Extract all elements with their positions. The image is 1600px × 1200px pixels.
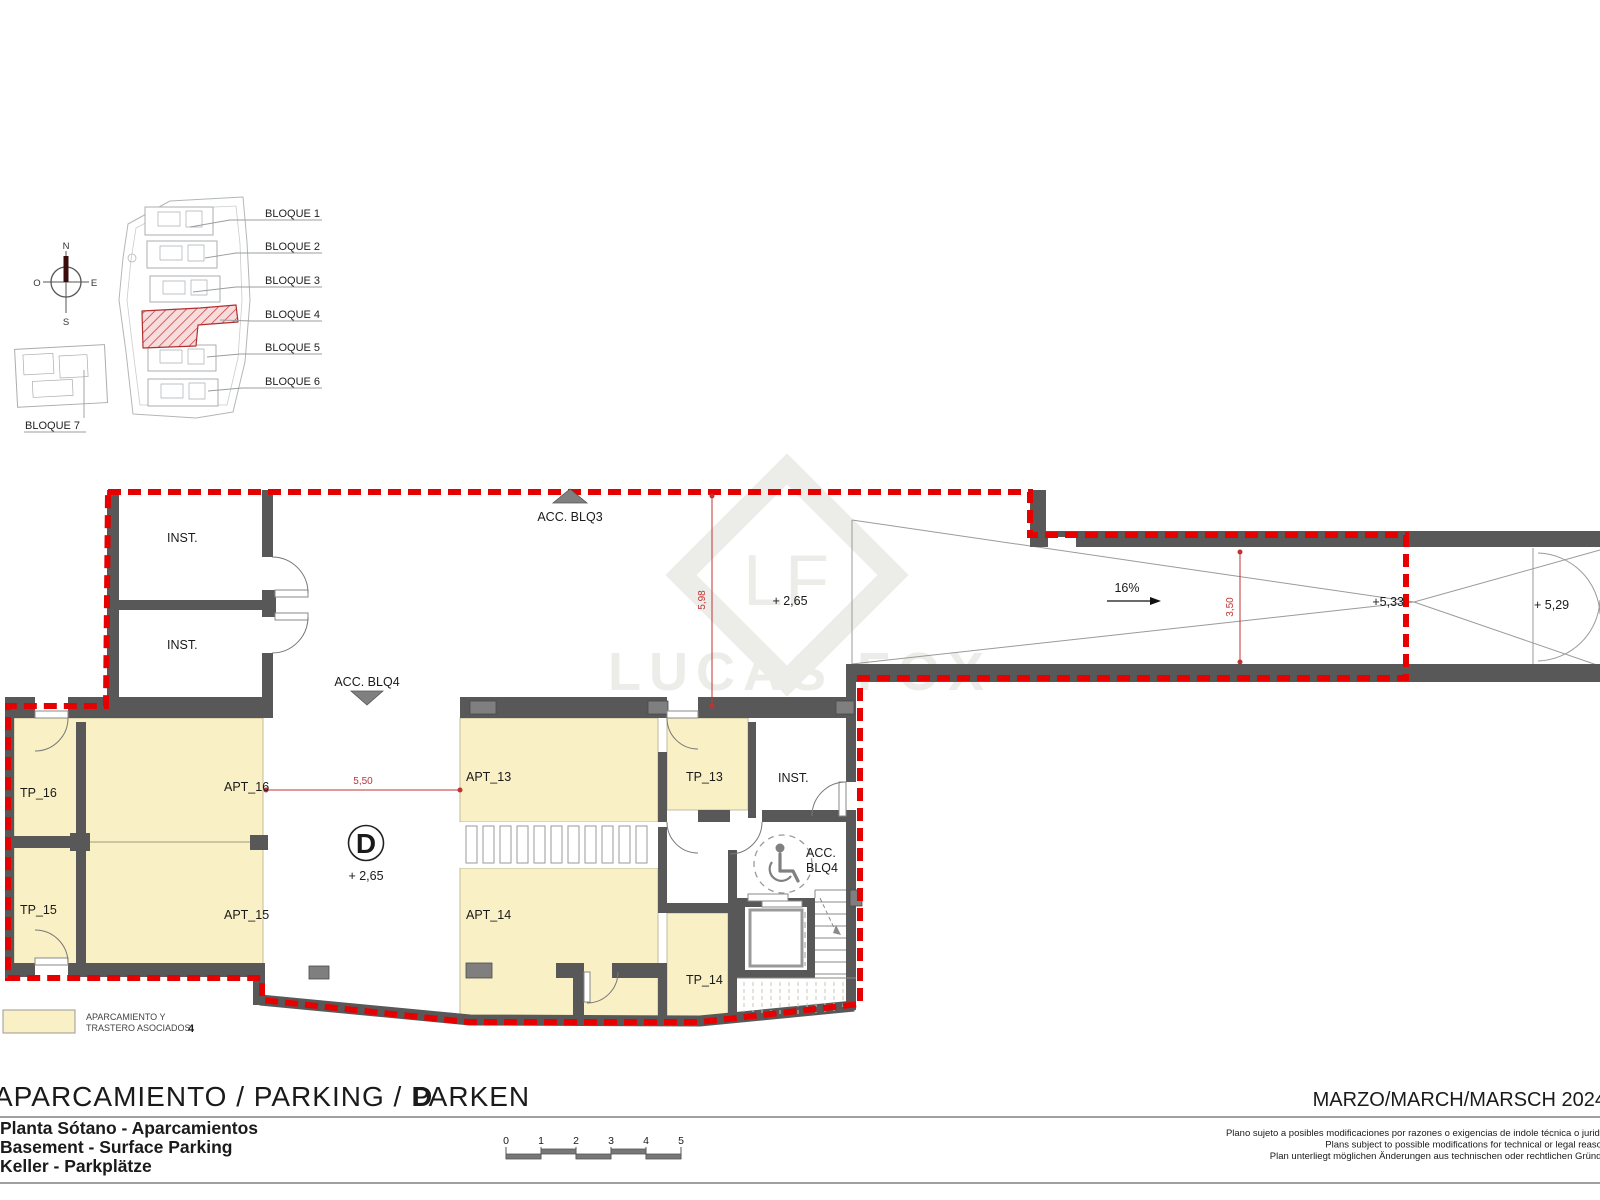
room-label-apt15: APT_15 [224, 908, 269, 922]
access-blq4-arrow-icon [351, 691, 383, 705]
site-label-bloque6: BLOQUE 6 [265, 376, 320, 388]
scale-bar: 0 1 2 3 4 5 [503, 1135, 684, 1159]
compass-needle [64, 256, 69, 282]
site-key-map: BLOQUE 1 BLOQUE 2 BLOQUE 3 BLOQUE 4 BLOQ… [15, 197, 322, 432]
sheet-date: MARZO/MARCH/MARSCH 2024 [1313, 1089, 1600, 1111]
wheelchair-icon [754, 835, 812, 893]
disclaimer-es: Plano sujeto a posibles modificaciones p… [1226, 1128, 1600, 1139]
access-side-label-2: BLQ4 [806, 861, 838, 875]
disclaimer-en: Plans subject to possible modifications … [1325, 1140, 1600, 1151]
elevator [750, 910, 805, 966]
room-label-apt13: APT_13 [466, 770, 511, 784]
site-blocks [145, 207, 220, 406]
dim-550: 5,50 [353, 776, 373, 787]
room-label-apt16: APT_16 [224, 780, 269, 794]
site-label-bloque1: BLOQUE 1 [265, 208, 320, 220]
title-block: APARCAMIENTO / PARKING / PARKEN D MARZO/… [0, 1081, 1600, 1183]
dim-598: 5,98 [697, 590, 708, 610]
access-blq4-label: ACC. BLQ4 [334, 675, 399, 689]
legend-line1: APARCAMIENTO Y [86, 1012, 166, 1022]
compass-s: S [63, 317, 69, 328]
site-label-bloque5: BLOQUE 5 [265, 342, 320, 354]
site-label-bloque2: BLOQUE 2 [265, 241, 320, 253]
floor-plan-svg: LF LUCAS FOX [0, 0, 1600, 1200]
site-block-7 [15, 345, 108, 408]
room-label-inst-bottom: INST. [167, 638, 198, 652]
wall-notch [1048, 537, 1076, 547]
room-label-tp14: TP_14 [686, 973, 723, 987]
site-label-bloque4: BLOQUE 4 [265, 309, 320, 321]
storage-slats [460, 822, 658, 868]
parking-area-tp13 [667, 718, 748, 810]
level-aisle: + 2,65 [348, 869, 383, 883]
scale-tick-2: 2 [573, 1135, 579, 1147]
watermark-initials: LF [743, 541, 831, 621]
site-label-bloque7: BLOQUE 7 [25, 420, 80, 432]
scale-tick-0: 0 [503, 1135, 509, 1147]
scale-tick-3: 3 [608, 1135, 614, 1147]
sector-marker: D [349, 826, 384, 861]
compass-e: E [91, 278, 97, 289]
level-hall: + 2,65 [772, 594, 807, 608]
scale-tick-1: 1 [538, 1135, 544, 1147]
sheet-title: APARCAMIENTO / PARKING / PARKEN [0, 1081, 530, 1112]
compass-o: O [33, 278, 40, 289]
level-ramp-end: + 5,29 [1534, 598, 1569, 612]
drawing-sheet: LF LUCAS FOX [0, 0, 1600, 1200]
room-label-inst-right: INST. [778, 771, 809, 785]
subtitle-en: Basement - Surface Parking [0, 1137, 232, 1157]
level-ramp-mid: +5,33 [1372, 595, 1404, 609]
parking-area-tp14 [667, 913, 728, 1016]
access-blq3-label: ACC. BLQ3 [537, 510, 602, 524]
room-label-inst-top: INST. [167, 531, 198, 545]
room-label-tp13: TP_13 [686, 770, 723, 784]
legend-swatch [3, 1010, 75, 1033]
sector-letter: D [356, 828, 376, 859]
site-block-4-highlight [142, 305, 238, 348]
disclaimer-de: Plan unterliegt möglichen Änderungen aus… [1270, 1151, 1600, 1162]
room-label-apt14: APT_14 [466, 908, 511, 922]
stairs [815, 890, 846, 974]
subtitle-es: Planta Sótano - Aparcamientos [0, 1118, 258, 1138]
legend: APARCAMIENTO Y TRASTERO ASOCIADOS 4 [3, 1010, 195, 1035]
site-label-bloque3: BLOQUE 3 [265, 275, 320, 287]
dim-350: 3,50 [1225, 597, 1236, 617]
access-side-label-1: ACC. [806, 846, 836, 860]
ramp-slope-arrow [1107, 597, 1161, 605]
scale-tick-4: 4 [643, 1135, 649, 1147]
room-label-tp15: TP_15 [20, 903, 57, 917]
compass-n: N [63, 241, 70, 252]
compass-rose: N S O E [33, 241, 97, 328]
parking-area-apt14 [460, 868, 658, 1018]
legend-count: 4 [188, 1023, 195, 1035]
sheet-title-letter: D [412, 1081, 432, 1112]
room-label-tp16: TP_16 [20, 786, 57, 800]
subtitle-de: Keller - Parkplätze [0, 1156, 152, 1176]
scale-tick-5: 5 [678, 1135, 684, 1147]
ramp-slope-label: 16% [1114, 581, 1139, 595]
legend-line2: TRASTERO ASOCIADOS [86, 1023, 191, 1033]
